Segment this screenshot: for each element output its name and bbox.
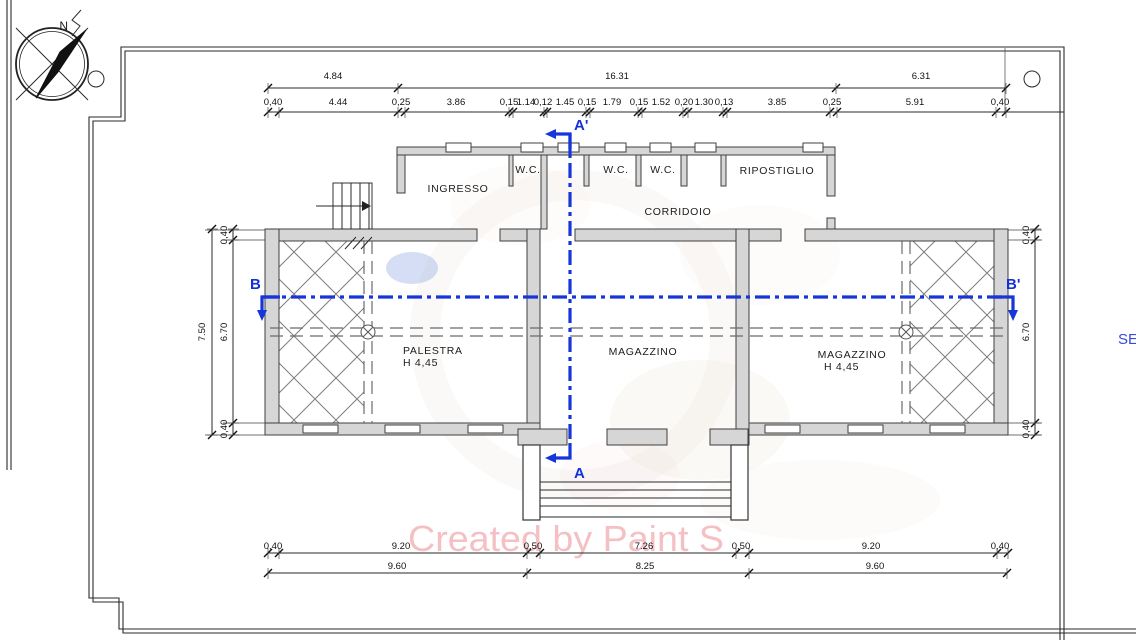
- dim-chain-bottom-overall: 9.608.259.60: [264, 561, 1011, 579]
- dim-label: 0,15: [578, 97, 597, 108]
- room-label-wc-2: W.C.: [603, 164, 629, 176]
- dim-label: 0,20: [675, 97, 694, 108]
- section-label-a-top: A': [574, 117, 588, 134]
- dim-label: 9.20: [392, 541, 411, 552]
- dim-label: 4.44: [329, 97, 348, 108]
- dim-label: 0,40: [264, 97, 283, 108]
- dim-label: 3.86: [447, 97, 466, 108]
- dim-chain-top-detail: 0,404.440,253.860,151.140,121.450,151.79…: [264, 97, 1064, 118]
- dim-label: 1.45: [556, 97, 575, 108]
- dim-chain-left-overall: 7.50: [197, 225, 218, 439]
- site-circle-left: [88, 71, 104, 87]
- room-label-corridoio: CORRIDOIO: [645, 206, 712, 218]
- dim-label: 0,50: [732, 541, 751, 552]
- room-label-wc-1: W.C.: [515, 164, 541, 176]
- dim-label: 5.91: [906, 97, 925, 108]
- dim-label: 16.31: [605, 71, 629, 82]
- room-label-ingresso: INGRESSO: [427, 183, 488, 195]
- section-label-a-bottom: A: [574, 465, 585, 482]
- dim-label: 0,40: [1021, 420, 1032, 439]
- dim-label: 0,25: [392, 97, 411, 108]
- section-label-b-left: B: [250, 276, 261, 293]
- dim-label: 7.26: [635, 541, 654, 552]
- dim-label: 0,15: [630, 97, 649, 108]
- dim-label: 1.79: [603, 97, 622, 108]
- dim-label: 0,40: [219, 420, 230, 439]
- room-label-palestra: PALESTRA: [403, 345, 463, 357]
- dim-chain-left-detail: 0,406.700,40: [219, 225, 239, 439]
- room-label-wc-3: W.C.: [650, 164, 676, 176]
- dim-label: 0,40: [219, 226, 230, 245]
- beam-junction-right: [899, 325, 913, 339]
- dim-label: 6.70: [1021, 323, 1032, 342]
- dim-label: 0,40: [991, 541, 1010, 552]
- room-label-palestra-height: H 4,45: [403, 357, 438, 369]
- dim-label: 7.50: [197, 323, 208, 342]
- dim-label: 1.30: [695, 97, 714, 108]
- room-label-ripostiglio: RIPOSTIGLIO: [740, 165, 815, 177]
- dim-label: 0,25: [823, 97, 842, 108]
- dim-label: 0,13: [715, 97, 734, 108]
- beam-junction-left: [361, 325, 375, 339]
- section-line-bb: B B': [250, 276, 1020, 321]
- dim-label: 3.85: [768, 97, 787, 108]
- room-label-magazzino-right-height: H 4,45: [824, 361, 859, 373]
- dim-label: 9.20: [862, 541, 881, 552]
- dim-label: 9.60: [388, 561, 407, 572]
- dim-label: 4.84: [324, 71, 343, 82]
- dim-label: 0,15: [500, 97, 519, 108]
- compass-rose: N: [16, 10, 88, 100]
- dim-chain-right-detail: 0,406.700,40: [1021, 225, 1041, 439]
- dim-label: 8.25: [636, 561, 655, 572]
- dim-label: 0,12: [534, 97, 553, 108]
- site-circle-right: [1024, 71, 1040, 87]
- room-label-magazzino-center: MAGAZZINO: [609, 346, 678, 358]
- dim-chain-top-overall: 4.8416.316.31: [264, 71, 1010, 94]
- dim-label: 6.31: [912, 71, 931, 82]
- dim-label: 9.60: [866, 561, 885, 572]
- floor-plan-canvas: Created by Paint S N: [0, 0, 1136, 640]
- room-label-magazzino-right: MAGAZZINO: [818, 349, 887, 361]
- compass-north-label: N: [59, 19, 68, 33]
- dim-label: 1.14: [517, 97, 536, 108]
- dim-label: 6.70: [219, 323, 230, 342]
- section-label-b-right: B': [1006, 276, 1020, 293]
- dim-label: 0,40: [1021, 226, 1032, 245]
- dim-label: 0,50: [524, 541, 543, 552]
- dim-label: 0,40: [264, 541, 283, 552]
- dim-label: 0,40: [991, 97, 1010, 108]
- dim-label: 1.52: [652, 97, 671, 108]
- edge-label-se: SE: [1118, 331, 1136, 348]
